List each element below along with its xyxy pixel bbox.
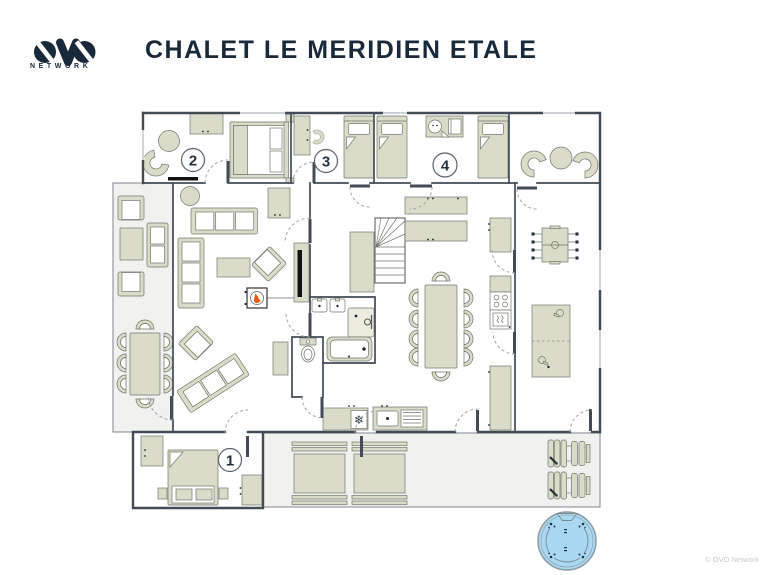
curved-chair (571, 147, 603, 180)
counter (490, 366, 511, 430)
stool (313, 130, 324, 144)
dresser (190, 113, 223, 134)
utility-area: ❄ (323, 405, 427, 430)
sofa (178, 238, 204, 308)
staircase-icon (375, 218, 405, 283)
coffee-table (217, 258, 250, 277)
table-tennis-icon (532, 305, 570, 377)
sink-icon (312, 298, 327, 312)
tv-icon (168, 177, 198, 181)
round-table (550, 147, 572, 169)
curved-chair (516, 146, 548, 179)
page: OVO NETWORK CHALET LE MERIDIEN ETALE (0, 0, 767, 575)
dining-table (425, 285, 457, 368)
wardrobe (242, 475, 262, 505)
bathtub-icon (327, 337, 372, 361)
armchair (251, 246, 286, 281)
side-table (181, 187, 200, 206)
foosball-table-icon (532, 226, 579, 264)
single-bed (344, 116, 374, 178)
room-number-4: 4 (441, 158, 450, 175)
fridge (490, 218, 511, 252)
games-room (532, 226, 579, 377)
sink-icon (330, 298, 345, 312)
room-number-3: 3 (322, 154, 330, 171)
wardrobe (141, 436, 163, 466)
hall-cupboard (273, 342, 288, 375)
oven-icon (490, 310, 511, 329)
room-number-1: 1 (226, 453, 234, 470)
bedroom-2-furniture (138, 113, 294, 183)
baby-cot-icon (426, 116, 463, 137)
dining-set (409, 272, 473, 381)
wardrobe (294, 116, 310, 155)
hot-tub-icon (538, 512, 596, 570)
room-number-2: 2 (189, 153, 197, 170)
double-bed (230, 114, 294, 183)
tv-unit (294, 243, 309, 302)
shower-icon (348, 308, 374, 337)
tv-icon (298, 250, 303, 297)
balcony-dining-table (130, 333, 160, 395)
armchair (178, 325, 213, 360)
sofa (191, 208, 258, 234)
counter (490, 276, 511, 292)
kitchen (488, 218, 511, 430)
single-bed (377, 116, 407, 178)
single-bed (478, 116, 508, 178)
toilet-icon (300, 338, 316, 362)
copyright-text: © OVO Network (705, 555, 759, 564)
cupboard (268, 188, 290, 218)
round-pouf (159, 131, 180, 152)
sofa (177, 353, 250, 413)
floorplan: ❄ (0, 0, 767, 575)
nightstand (286, 114, 294, 122)
living-room-furniture (177, 187, 309, 413)
double-bed (158, 450, 228, 505)
nightstand (158, 488, 167, 499)
hob-icon (490, 292, 511, 310)
wood-stove (244, 288, 296, 308)
seating-nook (516, 146, 603, 180)
nightstand (219, 488, 228, 499)
